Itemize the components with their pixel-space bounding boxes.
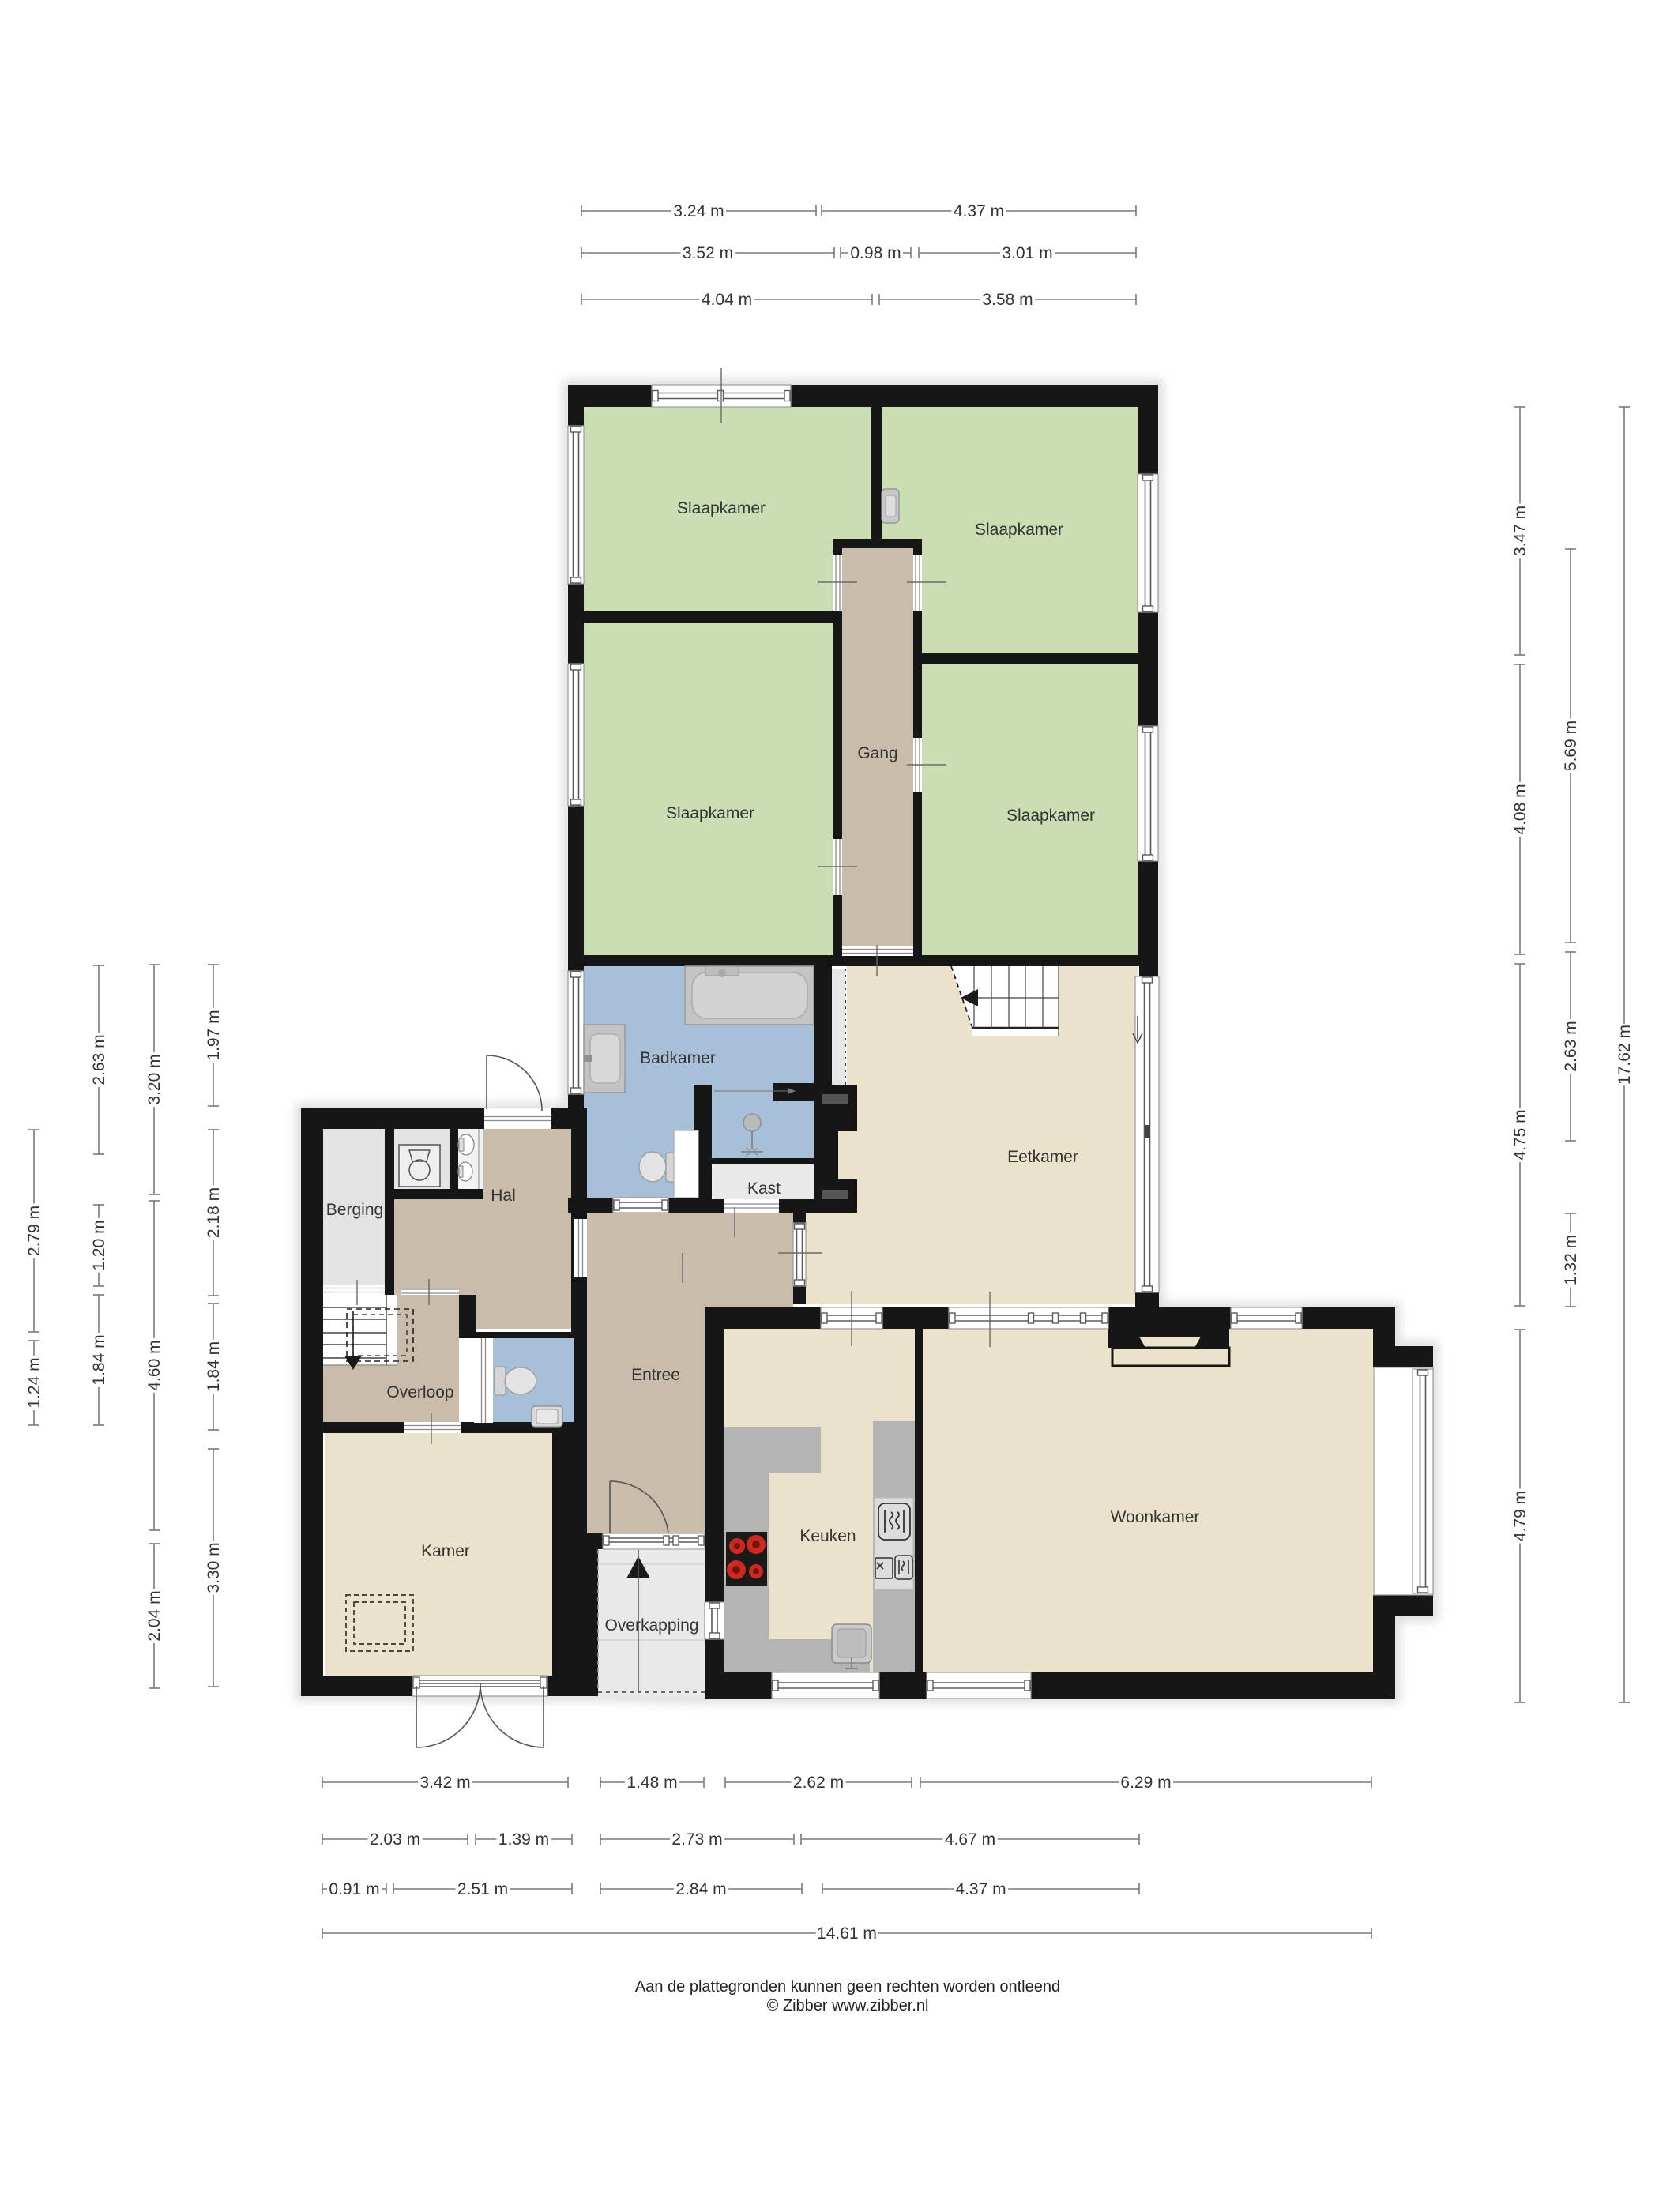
svg-text:© Zibber www.zibber.nl: © Zibber www.zibber.nl xyxy=(767,1997,929,2014)
svg-text:Woonkamer: Woonkamer xyxy=(1111,1508,1200,1526)
svg-text:Slaapkamer: Slaapkamer xyxy=(677,499,766,517)
svg-text:1.20 m: 1.20 m xyxy=(90,1220,108,1270)
svg-text:Kamer: Kamer xyxy=(421,1542,470,1560)
svg-text:1.84 m: 1.84 m xyxy=(90,1334,108,1385)
svg-text:2.73 m: 2.73 m xyxy=(671,1830,722,1849)
svg-text:6.29 m: 6.29 m xyxy=(1120,1774,1171,1792)
svg-text:4.79 m: 4.79 m xyxy=(1511,1491,1529,1541)
svg-text:Kast: Kast xyxy=(747,1179,781,1198)
svg-text:3.30 m: 3.30 m xyxy=(205,1542,223,1593)
svg-text:2.84 m: 2.84 m xyxy=(675,1880,726,1898)
svg-text:3.58 m: 3.58 m xyxy=(982,291,1033,309)
svg-text:Aan de plattegronden kunnen ge: Aan de plattegronden kunnen geen rechten… xyxy=(635,1978,1060,1996)
svg-text:2.62 m: 2.62 m xyxy=(793,1774,844,1792)
svg-text:3.24 m: 3.24 m xyxy=(673,202,724,220)
svg-text:Eetkamer: Eetkamer xyxy=(1007,1148,1078,1166)
svg-text:Slaapkamer: Slaapkamer xyxy=(1006,807,1095,825)
svg-text:3.42 m: 3.42 m xyxy=(419,1774,470,1792)
svg-text:Entree: Entree xyxy=(631,1366,680,1384)
svg-text:4.75 m: 4.75 m xyxy=(1511,1109,1529,1160)
svg-text:14.61 m: 14.61 m xyxy=(817,1924,877,1943)
svg-text:1.84 m: 1.84 m xyxy=(205,1341,223,1392)
svg-text:4.60 m: 4.60 m xyxy=(145,1340,164,1390)
svg-text:Berging: Berging xyxy=(326,1201,383,1219)
svg-text:Slaapkamer: Slaapkamer xyxy=(666,804,754,822)
svg-text:3.01 m: 3.01 m xyxy=(1002,244,1052,262)
svg-text:Slaapkamer: Slaapkamer xyxy=(975,521,1063,539)
svg-text:1.97 m: 1.97 m xyxy=(205,1010,223,1060)
svg-text:3.20 m: 3.20 m xyxy=(145,1054,164,1104)
svg-text:4.08 m: 4.08 m xyxy=(1511,784,1529,834)
svg-text:1.48 m: 1.48 m xyxy=(626,1774,677,1792)
svg-text:2.63 m: 2.63 m xyxy=(1562,1021,1580,1071)
svg-text:Keuken: Keuken xyxy=(799,1527,856,1545)
svg-text:Overkapping: Overkapping xyxy=(604,1616,698,1635)
svg-text:0.91 m: 0.91 m xyxy=(329,1880,379,1898)
svg-text:Hal: Hal xyxy=(491,1187,516,1205)
svg-text:4.37 m: 4.37 m xyxy=(954,202,1004,220)
svg-text:1.39 m: 1.39 m xyxy=(498,1830,549,1849)
svg-text:1.24 m: 1.24 m xyxy=(25,1357,43,1408)
svg-text:5.69 m: 5.69 m xyxy=(1562,720,1580,771)
svg-text:3.52 m: 3.52 m xyxy=(683,244,733,262)
svg-text:2.79 m: 2.79 m xyxy=(25,1206,43,1256)
svg-text:2.04 m: 2.04 m xyxy=(145,1590,164,1641)
svg-text:4.04 m: 4.04 m xyxy=(702,291,752,309)
svg-text:2.63 m: 2.63 m xyxy=(90,1034,108,1085)
svg-text:Overloop: Overloop xyxy=(386,1383,453,1401)
svg-text:17.62 m: 17.62 m xyxy=(1616,1025,1634,1085)
svg-text:2.18 m: 2.18 m xyxy=(205,1187,223,1238)
svg-text:1.32 m: 1.32 m xyxy=(1562,1235,1580,1285)
svg-text:4.37 m: 4.37 m xyxy=(955,1880,1006,1898)
svg-text:Gang: Gang xyxy=(857,744,897,762)
svg-text:Badkamer: Badkamer xyxy=(640,1049,716,1067)
svg-text:3.47 m: 3.47 m xyxy=(1511,506,1529,556)
svg-text:2.51 m: 2.51 m xyxy=(457,1880,508,1898)
svg-text:4.67 m: 4.67 m xyxy=(945,1830,995,1849)
svg-text:2.03 m: 2.03 m xyxy=(370,1830,420,1849)
svg-text:0.98 m: 0.98 m xyxy=(850,244,901,262)
